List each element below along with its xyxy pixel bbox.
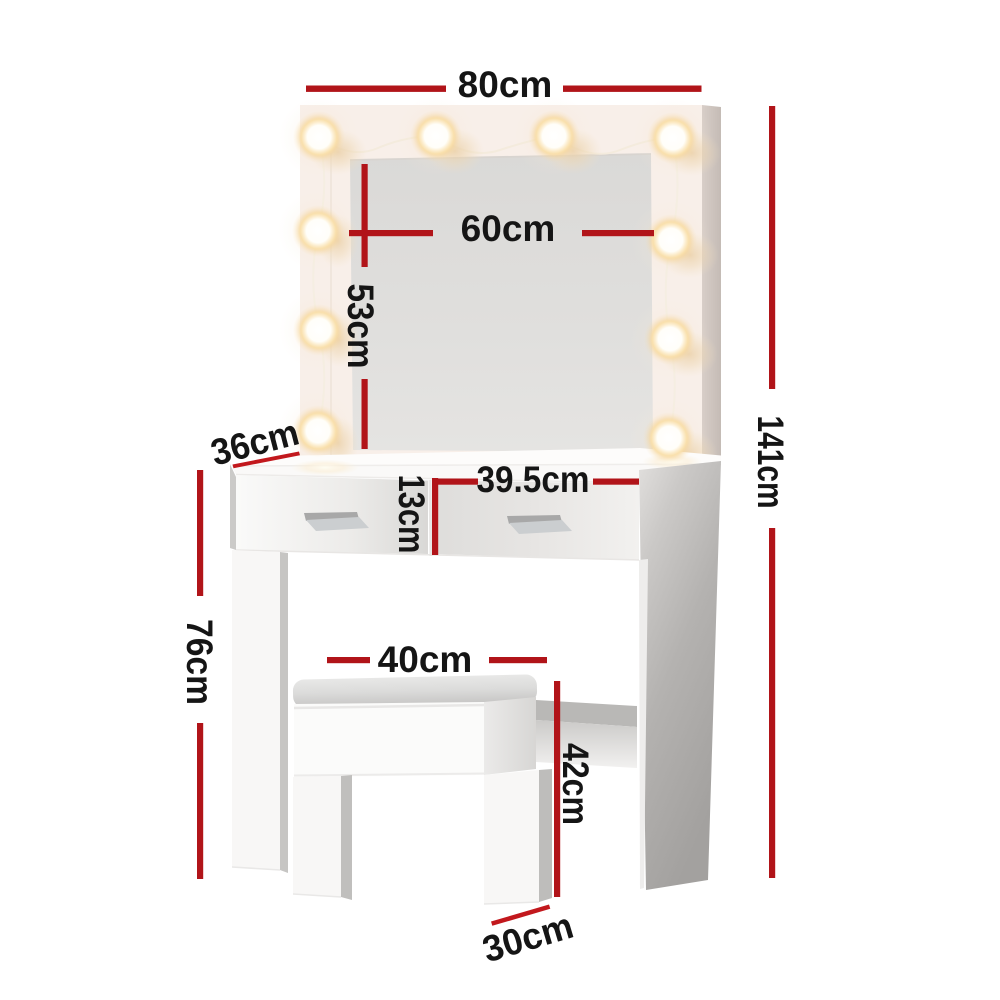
svg-text:76cm: 76cm — [179, 619, 220, 705]
svg-text:42cm: 42cm — [555, 743, 596, 825]
svg-text:53cm: 53cm — [340, 284, 381, 369]
svg-text:13cm: 13cm — [391, 475, 432, 554]
svg-text:60cm: 60cm — [461, 208, 556, 249]
svg-text:80cm: 80cm — [458, 64, 553, 105]
svg-text:141cm: 141cm — [750, 416, 791, 509]
svg-text:40cm: 40cm — [378, 639, 473, 680]
svg-text:39.5cm: 39.5cm — [477, 459, 590, 500]
